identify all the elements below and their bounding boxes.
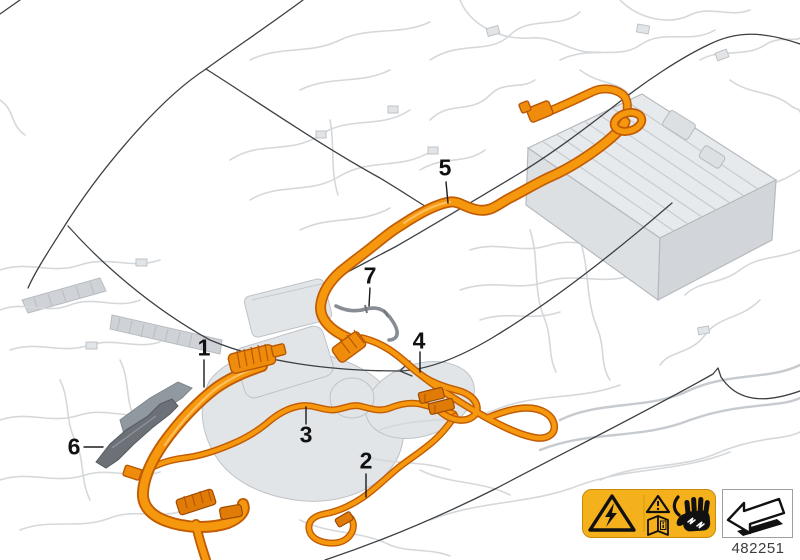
callout-2[interactable]: 2: [360, 450, 373, 473]
direction-arrow-box: [722, 489, 793, 538]
part-number: 482251: [716, 540, 800, 557]
hv-battery-unit: [526, 94, 776, 300]
high-voltage-warning-label: [582, 489, 716, 538]
callout-5[interactable]: 5: [439, 157, 452, 180]
callout-1[interactable]: 1: [198, 337, 211, 360]
callout-7[interactable]: 7: [364, 265, 377, 288]
callout-4[interactable]: 4: [413, 330, 426, 353]
callout-6[interactable]: 6: [68, 436, 81, 459]
callout-3[interactable]: 3: [300, 424, 313, 447]
parts-diagram-canvas: 1 2 3 4 5 6 7: [0, 0, 800, 560]
cable-3-connector: [123, 465, 143, 481]
cable-1-end-connectors: [175, 489, 242, 520]
diagram-artwork: [0, 0, 800, 560]
cable-5-top-connector: [518, 100, 553, 123]
direction-of-travel-arrow-icon: [723, 490, 791, 536]
